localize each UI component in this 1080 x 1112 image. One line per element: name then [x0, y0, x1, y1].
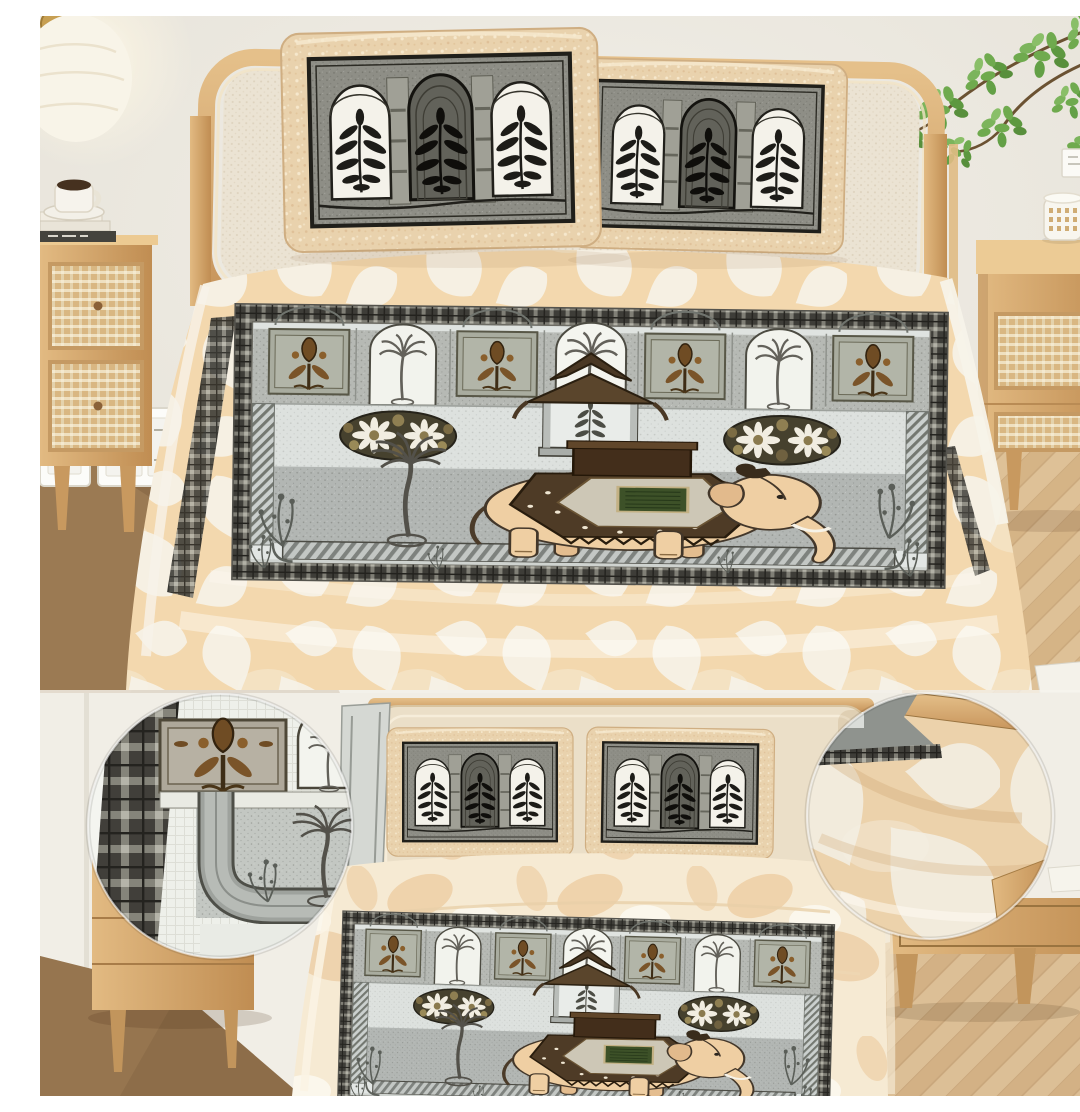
- drawer-knob: [94, 402, 103, 411]
- pillow-sham-left: [281, 28, 602, 253]
- nightstand-top: [976, 240, 1080, 274]
- drawer-knob: [94, 302, 103, 311]
- rattan-drawer: [996, 414, 1080, 450]
- product-photo: Elephant and Mughal-arch block-print jac…: [40, 16, 1080, 1096]
- light-switch-right: [1062, 149, 1080, 177]
- bottom-strip: [40, 690, 1080, 1096]
- arch-plaque-closeup: [160, 719, 286, 792]
- collage-seam: [40, 690, 1080, 693]
- bottom-bed-front-view: [292, 698, 891, 1096]
- ceramic-candle-holder: [1042, 193, 1080, 244]
- rattan-drawer: [996, 314, 1080, 388]
- pillow-sham-front-left: [387, 728, 573, 856]
- bed-post-left: [190, 116, 211, 306]
- pillow-sham-right: [568, 58, 847, 255]
- bedroom-scene-svg: [40, 16, 1080, 1096]
- top-scene: [40, 16, 1080, 693]
- coffee: [57, 180, 91, 191]
- pillow-sham-front-right: [585, 727, 774, 859]
